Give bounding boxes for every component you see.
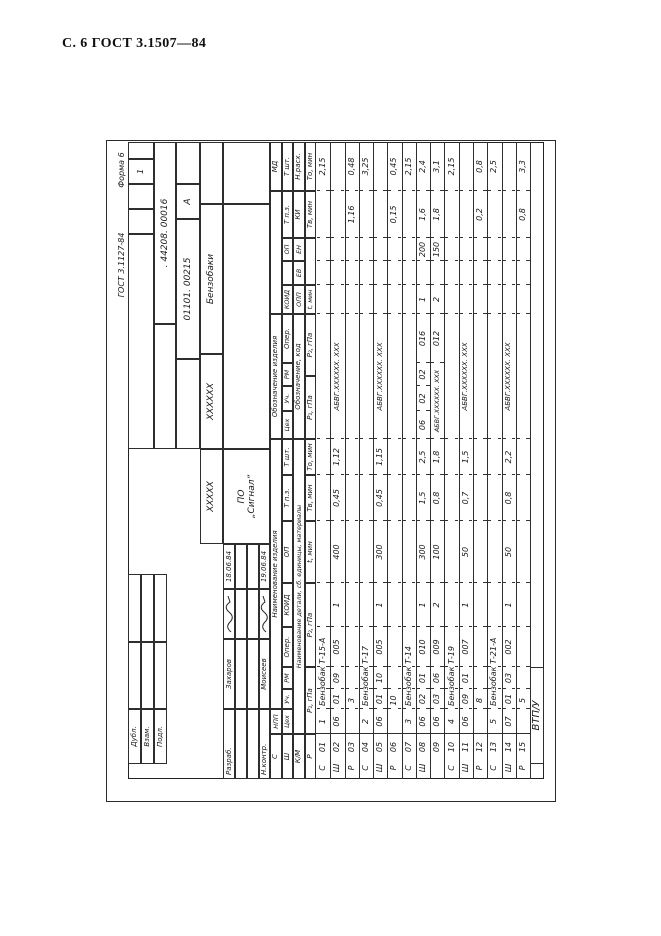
column-tick bbox=[369, 237, 373, 238]
column-tick bbox=[431, 626, 435, 627]
column-tick bbox=[398, 708, 402, 709]
column-tick bbox=[516, 708, 520, 709]
row-p1: 3 bbox=[345, 667, 359, 734]
form-standard-ref: ГОСТ 3.1127-84 bbox=[116, 203, 127, 327]
column-tick bbox=[412, 626, 416, 627]
header-nrash: Н.расх. bbox=[293, 142, 305, 191]
column-tick bbox=[445, 626, 449, 627]
stamp-code-x5: ХХХХХ bbox=[200, 449, 223, 544]
row-oper: 010 bbox=[416, 627, 430, 667]
column-tick bbox=[355, 708, 359, 709]
header-tv: Тв, мин bbox=[305, 191, 317, 238]
titleblock-role: Разраб. bbox=[223, 709, 235, 779]
column-tick bbox=[483, 284, 487, 285]
column-tick bbox=[459, 190, 463, 191]
column-tick bbox=[341, 237, 345, 238]
column-tick bbox=[483, 438, 487, 439]
row-md: 3,25 bbox=[359, 142, 373, 191]
column-tick bbox=[512, 237, 516, 238]
row-service-symbol: Ш bbox=[502, 759, 516, 777]
column-tick bbox=[388, 237, 392, 238]
column-tick bbox=[526, 582, 530, 583]
column-tick bbox=[498, 582, 502, 583]
column-tick bbox=[383, 260, 387, 261]
column-tick bbox=[512, 582, 516, 583]
row-npp: 1 bbox=[316, 709, 330, 734]
column-tick bbox=[426, 190, 430, 191]
stamp-empty-j bbox=[223, 142, 270, 204]
row-ceh: 06 bbox=[416, 709, 430, 734]
column-tick bbox=[469, 666, 473, 667]
row-number: 03 bbox=[345, 735, 359, 759]
column-tick bbox=[488, 666, 492, 667]
column-tick bbox=[416, 520, 420, 521]
column-tick bbox=[498, 284, 502, 285]
header-ceh: Цех bbox=[282, 411, 294, 439]
column-tick bbox=[331, 313, 335, 314]
row-tpz-2: 1,6 bbox=[416, 191, 430, 238]
column-tick bbox=[469, 237, 473, 238]
column-tick bbox=[355, 260, 359, 261]
column-tick bbox=[374, 438, 378, 439]
column-tick bbox=[331, 438, 335, 439]
column-tick bbox=[498, 666, 502, 667]
column-tick bbox=[473, 688, 477, 689]
column-tick bbox=[341, 190, 345, 191]
column-tick bbox=[440, 438, 444, 439]
row-oper: 005 bbox=[373, 627, 387, 667]
column-tick bbox=[374, 688, 378, 689]
column-tick bbox=[402, 438, 406, 439]
column-tick bbox=[483, 260, 487, 261]
column-tick bbox=[359, 626, 363, 627]
stamp-empty-d bbox=[128, 142, 154, 159]
column-tick bbox=[469, 313, 473, 314]
column-tick bbox=[526, 626, 530, 627]
header-rm: РМ bbox=[282, 363, 294, 386]
header-to: То, мин bbox=[305, 439, 317, 475]
row-uch: 09 bbox=[459, 689, 473, 709]
column-tick bbox=[498, 438, 502, 439]
header-oper: Опер. bbox=[282, 627, 294, 667]
header-en: ЕН bbox=[293, 238, 305, 261]
row-rm: 10 bbox=[373, 667, 387, 689]
column-tick bbox=[498, 313, 502, 314]
column-tick bbox=[317, 284, 321, 285]
column-tick bbox=[383, 688, 387, 689]
row-rm: 03 bbox=[502, 667, 516, 689]
row-to: 0,45 bbox=[387, 142, 401, 191]
column-tick bbox=[440, 190, 444, 191]
column-tick bbox=[445, 666, 449, 667]
row-service-symbol: Ш bbox=[373, 759, 387, 777]
column-tick bbox=[459, 626, 463, 627]
row-koid: 1 bbox=[373, 583, 387, 627]
column-tick bbox=[455, 313, 459, 314]
row-service-symbol: Р bbox=[516, 759, 530, 777]
column-tick bbox=[388, 438, 392, 439]
column-tick bbox=[383, 474, 387, 475]
column-tick bbox=[502, 313, 506, 314]
column-tick bbox=[526, 237, 530, 238]
column-tick bbox=[498, 688, 502, 689]
header-p2: Р₂, гПа bbox=[305, 583, 317, 667]
row-service-symbol: Р bbox=[387, 759, 401, 777]
stamp-empty-b bbox=[128, 209, 154, 234]
column-tick bbox=[502, 260, 506, 261]
column-tick bbox=[455, 708, 459, 709]
column-tick bbox=[502, 520, 506, 521]
column-tick bbox=[516, 190, 520, 191]
column-tick bbox=[512, 666, 516, 667]
row-rm: 09 bbox=[330, 667, 344, 689]
column-tick bbox=[445, 474, 449, 475]
row-number: 05 bbox=[373, 735, 387, 759]
column-tick bbox=[412, 708, 416, 709]
row-oper-2: 016 bbox=[416, 314, 430, 363]
header-s: С bbox=[270, 734, 282, 779]
footer-document-code: ВТП/У bbox=[530, 667, 544, 764]
column-tick bbox=[516, 582, 520, 583]
column-tick bbox=[469, 284, 473, 285]
column-tick bbox=[440, 582, 444, 583]
column-tick bbox=[383, 438, 387, 439]
column-tick bbox=[331, 582, 335, 583]
column-tick bbox=[459, 438, 463, 439]
header-blank bbox=[305, 238, 317, 285]
column-tick bbox=[341, 284, 345, 285]
column-tick bbox=[502, 626, 506, 627]
row-number: 08 bbox=[416, 735, 430, 759]
row-oper: 009 bbox=[430, 627, 444, 667]
column-tick bbox=[526, 313, 530, 314]
column-tick bbox=[326, 666, 330, 667]
header-p1: Р₁, гПа bbox=[305, 376, 317, 439]
column-tick bbox=[383, 708, 387, 709]
titleblock-role bbox=[235, 709, 247, 779]
column-tick bbox=[473, 190, 477, 191]
row-tv: 0,2 bbox=[473, 191, 487, 238]
column-tick bbox=[488, 708, 492, 709]
row-tsht: 1,8 bbox=[430, 439, 444, 475]
column-tick bbox=[502, 438, 506, 439]
column-tick bbox=[402, 260, 406, 261]
column-tick bbox=[416, 190, 420, 191]
column-tick bbox=[473, 626, 477, 627]
column-tick bbox=[455, 520, 459, 521]
column-tick bbox=[369, 708, 373, 709]
column-tick bbox=[355, 688, 359, 689]
column-tick bbox=[526, 190, 530, 191]
column-tick bbox=[473, 474, 477, 475]
header-blank bbox=[270, 191, 282, 314]
column-tick bbox=[483, 474, 487, 475]
column-tick bbox=[488, 582, 492, 583]
column-tick bbox=[388, 626, 392, 627]
row-md: 2,15 bbox=[402, 142, 416, 191]
row-tpz: 1,5 bbox=[416, 475, 430, 521]
titleblock-name: Захаров bbox=[223, 639, 235, 709]
column-tick bbox=[473, 260, 477, 261]
column-tick bbox=[341, 626, 345, 627]
column-tick bbox=[526, 474, 530, 475]
column-tick bbox=[345, 474, 349, 475]
column-tick bbox=[473, 313, 477, 314]
column-tick bbox=[359, 520, 363, 521]
column-tick bbox=[416, 666, 420, 667]
column-tick bbox=[317, 313, 321, 314]
column-tick bbox=[512, 688, 516, 689]
column-tick bbox=[388, 284, 392, 285]
stamp-empty-h bbox=[200, 142, 223, 204]
column-tick bbox=[431, 260, 435, 261]
titleblock-signature-cell bbox=[259, 589, 271, 639]
row-service-symbol: С bbox=[487, 759, 501, 777]
column-tick bbox=[369, 688, 373, 689]
column-tick bbox=[388, 582, 392, 583]
column-tick bbox=[459, 688, 463, 689]
column-tick bbox=[469, 582, 473, 583]
titleblock-name bbox=[247, 639, 259, 709]
column-tick bbox=[512, 284, 516, 285]
column-tick bbox=[498, 474, 502, 475]
row-product-name: Бензобак Т-21-А bbox=[487, 439, 501, 709]
column-tick bbox=[488, 313, 492, 314]
row-oper: 005 bbox=[330, 627, 344, 667]
column-tick bbox=[402, 626, 406, 627]
row-ceh: 06 bbox=[430, 709, 444, 734]
column-tick bbox=[398, 666, 402, 667]
column-tick bbox=[374, 708, 378, 709]
row-koid: 1 bbox=[330, 583, 344, 627]
column-tick bbox=[369, 284, 373, 285]
column-tick bbox=[483, 626, 487, 627]
column-tick bbox=[426, 237, 430, 238]
column-tick bbox=[431, 688, 435, 689]
column-tick bbox=[459, 284, 463, 285]
column-tick bbox=[398, 688, 402, 689]
row-to: 0,48 bbox=[345, 142, 359, 191]
row-number: 07 bbox=[402, 735, 416, 759]
column-tick bbox=[402, 582, 406, 583]
column-tick bbox=[445, 520, 449, 521]
header-p1: Р₁, гПа bbox=[305, 667, 317, 734]
column-tick bbox=[498, 708, 502, 709]
column-tick bbox=[383, 190, 387, 191]
column-tick bbox=[398, 237, 402, 238]
column-tick bbox=[459, 582, 463, 583]
column-tick bbox=[317, 190, 321, 191]
column-tick bbox=[388, 190, 392, 191]
row-tsht: 1,12 bbox=[330, 439, 344, 475]
column-tick bbox=[488, 260, 492, 261]
header-ceh: Цех bbox=[282, 709, 294, 734]
row-npp: 3 bbox=[402, 709, 416, 734]
column-tick bbox=[488, 474, 492, 475]
column-tick bbox=[355, 313, 359, 314]
row-tpz-2: 1,8 bbox=[430, 191, 444, 238]
row-number: 04 bbox=[359, 735, 373, 759]
column-tick bbox=[388, 260, 392, 261]
header-rm: РМ bbox=[282, 667, 294, 689]
signature-icon bbox=[224, 594, 234, 634]
column-tick bbox=[341, 438, 345, 439]
row-ceh: 06 bbox=[459, 709, 473, 734]
row-ceh: 06 bbox=[373, 709, 387, 734]
column-tick bbox=[440, 708, 444, 709]
stamp-code-x6: ХХХХХХ bbox=[200, 354, 223, 449]
column-tick bbox=[345, 708, 349, 709]
column-tick bbox=[459, 313, 463, 314]
column-tick bbox=[473, 237, 477, 238]
column-tick bbox=[359, 688, 363, 689]
row-uch: 01 bbox=[502, 689, 516, 709]
column-tick bbox=[483, 520, 487, 521]
row-rm-2: 02 bbox=[416, 363, 430, 386]
titleblock-name: Моисеев bbox=[259, 639, 271, 709]
column-tick bbox=[416, 474, 420, 475]
column-tick bbox=[469, 626, 473, 627]
header-md: МД bbox=[270, 142, 282, 191]
row-oper: 007 bbox=[459, 627, 473, 667]
row-service-symbol: Р bbox=[473, 759, 487, 777]
column-tick bbox=[398, 520, 402, 521]
row-ceh: 06 bbox=[330, 709, 344, 734]
column-tick bbox=[402, 190, 406, 191]
column-tick bbox=[412, 582, 416, 583]
column-tick bbox=[416, 688, 420, 689]
titleblock-signature-cell bbox=[235, 589, 247, 639]
column-tick bbox=[326, 688, 330, 689]
titleblock-role bbox=[247, 709, 259, 779]
header-km: К/М bbox=[293, 734, 305, 779]
column-tick bbox=[426, 362, 430, 363]
column-tick bbox=[383, 237, 387, 238]
technological-form: ГОСТ 3.1127-84 Форма 6 Дубл.Взам.Подл.1.… bbox=[115, 141, 545, 779]
column-tick bbox=[498, 626, 502, 627]
stamp-empty-c bbox=[128, 184, 154, 209]
column-tick bbox=[345, 688, 349, 689]
header-naim_det: Наименование детали, сб. единицы, матери… bbox=[293, 439, 305, 734]
column-tick bbox=[431, 474, 435, 475]
column-tick bbox=[516, 237, 520, 238]
column-tick bbox=[483, 666, 487, 667]
titleblock-signature-cell bbox=[223, 589, 235, 639]
column-tick bbox=[345, 626, 349, 627]
column-tick bbox=[483, 237, 487, 238]
column-tick bbox=[440, 520, 444, 521]
column-tick bbox=[398, 626, 402, 627]
column-tick bbox=[374, 313, 378, 314]
row-rm: 01 bbox=[416, 667, 430, 689]
header-tv: Тв, мин bbox=[305, 475, 317, 521]
header-koid: КОИД bbox=[282, 583, 294, 627]
dupl-block-cell bbox=[141, 642, 154, 709]
column-tick bbox=[369, 626, 373, 627]
header-tpz: Т п.з. bbox=[282, 191, 294, 238]
column-tick bbox=[388, 708, 392, 709]
column-tick bbox=[498, 190, 502, 191]
row-op: 50 bbox=[459, 521, 473, 583]
titleblock-name bbox=[235, 639, 247, 709]
row-tv: 1,16 bbox=[345, 191, 359, 238]
header-ev: ЕВ bbox=[293, 261, 305, 285]
column-tick bbox=[388, 474, 392, 475]
column-tick bbox=[374, 520, 378, 521]
column-tick bbox=[455, 688, 459, 689]
column-tick bbox=[459, 666, 463, 667]
row-number: 14 bbox=[502, 735, 516, 759]
row-service-symbol: С bbox=[359, 759, 373, 777]
column-tick bbox=[412, 313, 416, 314]
column-tick bbox=[326, 626, 330, 627]
titleblock-date: 19.06.84 bbox=[259, 544, 271, 589]
column-tick bbox=[355, 284, 359, 285]
column-tick bbox=[317, 260, 321, 261]
column-tick bbox=[369, 313, 373, 314]
row-npp: 4 bbox=[444, 709, 458, 734]
row-tsht: 1,5 bbox=[459, 439, 473, 475]
column-tick bbox=[331, 237, 335, 238]
signature-icon bbox=[259, 594, 269, 634]
column-tick bbox=[483, 582, 487, 583]
column-tick bbox=[512, 438, 516, 439]
column-tick bbox=[469, 708, 473, 709]
dupl-block-cell bbox=[141, 574, 154, 642]
column-tick bbox=[431, 313, 435, 314]
column-tick bbox=[317, 626, 321, 627]
row-product-name: Бензобак Т-17 bbox=[359, 439, 373, 709]
column-tick bbox=[459, 474, 463, 475]
row-service-symbol: С bbox=[444, 759, 458, 777]
column-tick bbox=[469, 438, 473, 439]
column-tick bbox=[345, 313, 349, 314]
column-tick bbox=[416, 410, 420, 411]
column-tick bbox=[483, 708, 487, 709]
row-op-2: 200 bbox=[416, 238, 430, 261]
column-tick bbox=[445, 582, 449, 583]
row-service-symbol: С bbox=[316, 759, 330, 777]
column-tick bbox=[317, 688, 321, 689]
stamp-litera: А bbox=[176, 184, 200, 219]
column-tick bbox=[345, 190, 349, 191]
column-tick bbox=[398, 438, 402, 439]
dupl-block-cell bbox=[154, 574, 167, 642]
column-tick bbox=[455, 237, 459, 238]
stamp-empty-a bbox=[128, 234, 154, 449]
column-tick bbox=[502, 190, 506, 191]
column-tick bbox=[483, 688, 487, 689]
row-op: 50 bbox=[502, 521, 516, 583]
column-tick bbox=[426, 688, 430, 689]
column-tick bbox=[355, 626, 359, 627]
column-tick bbox=[459, 237, 463, 238]
column-tick bbox=[374, 284, 378, 285]
column-tick bbox=[388, 666, 392, 667]
stamp-empty-g bbox=[176, 142, 200, 184]
column-tick bbox=[516, 666, 520, 667]
column-tick bbox=[473, 708, 477, 709]
column-tick bbox=[469, 520, 473, 521]
header-obozn_kod: Обозначение, код bbox=[293, 314, 305, 439]
row-koid-2: 2 bbox=[430, 285, 444, 314]
dupl-block-cell bbox=[128, 642, 141, 709]
column-tick bbox=[398, 313, 402, 314]
column-tick bbox=[398, 284, 402, 285]
column-tick bbox=[374, 582, 378, 583]
column-tick bbox=[455, 284, 459, 285]
organization-name: ПО„Сигнал” bbox=[223, 449, 270, 544]
